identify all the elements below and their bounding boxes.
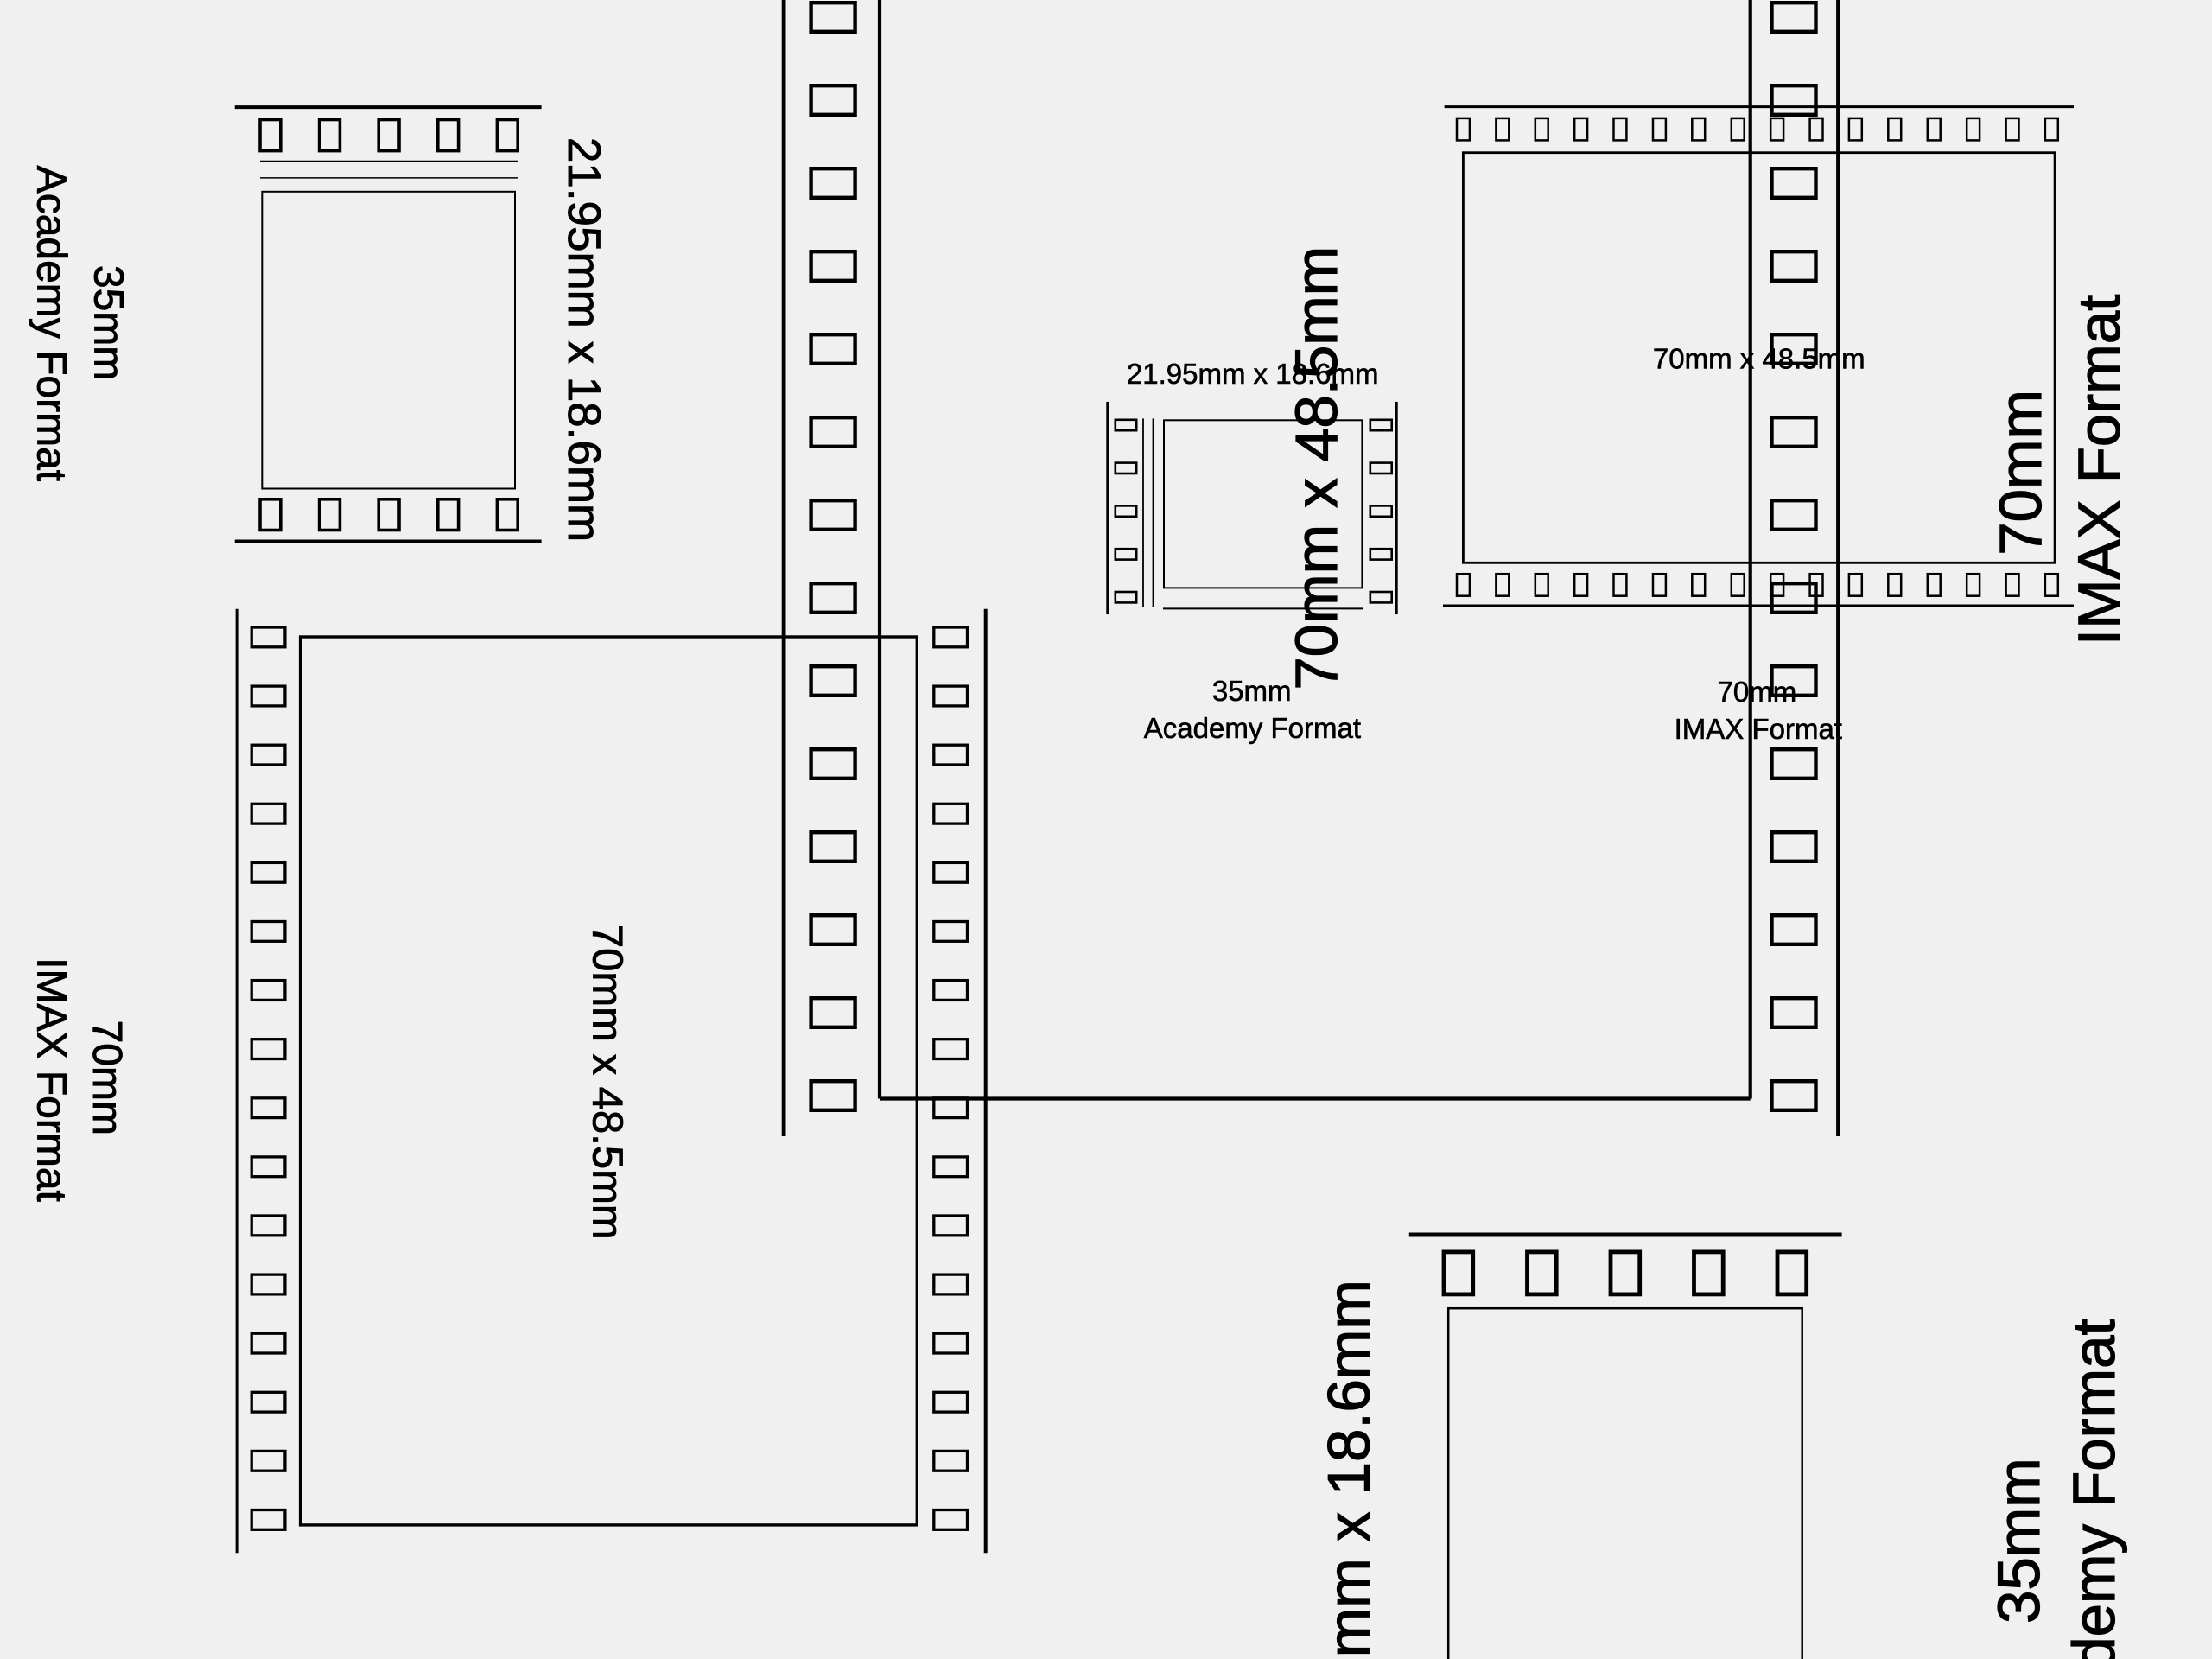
svg-text:IMAX Format: IMAX Format (2066, 295, 2133, 645)
svg-text:21.95mm x 18.6mm: 21.95mm x 18.6mm (1315, 1280, 1382, 1659)
svg-text:70mm x 48.5mm: 70mm x 48.5mm (1283, 246, 1350, 690)
svg-text:35mm: 35mm (85, 265, 130, 380)
svg-text:Academy Format: Academy Format (29, 166, 74, 481)
svg-text:70mm x 48.5mm: 70mm x 48.5mm (1653, 343, 1866, 375)
svg-text:70mm: 70mm (1718, 676, 1797, 708)
svg-text:70mm: 70mm (84, 1020, 130, 1135)
svg-text:Academy Format: Academy Format (2061, 1319, 2127, 1659)
svg-text:IMAX Format: IMAX Format (1675, 713, 1842, 745)
svg-text:70mm: 70mm (1987, 390, 2054, 556)
svg-text:70mm x 48.5mm: 70mm x 48.5mm (584, 925, 631, 1240)
svg-text:35mm: 35mm (1212, 675, 1292, 707)
svg-text:35mm: 35mm (1986, 1458, 2052, 1624)
svg-text:IMAX Format: IMAX Format (29, 957, 74, 1202)
svg-text:21.95mm x 18.6mm: 21.95mm x 18.6mm (558, 137, 609, 542)
svg-text:Academy Format: Academy Format (1144, 712, 1361, 744)
